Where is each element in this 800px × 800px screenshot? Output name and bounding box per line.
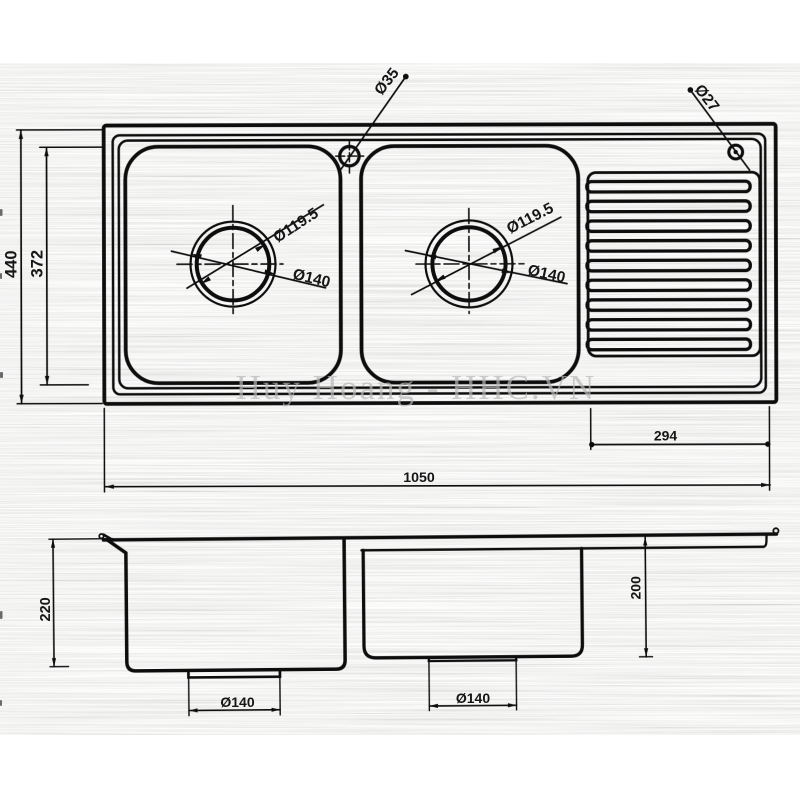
svg-text:Ø140: Ø140 (456, 690, 490, 706)
svg-text:200: 200 (628, 576, 644, 600)
svg-text:1050: 1050 (403, 470, 435, 486)
svg-text:372: 372 (29, 250, 47, 278)
svg-text:220: 220 (38, 597, 54, 621)
svg-text:Ø140: Ø140 (220, 694, 254, 710)
svg-text:440: 440 (3, 250, 21, 278)
svg-text:294: 294 (654, 428, 678, 444)
svg-text:Huy Hoang - HHC.VN: Huy Hoang - HHC.VN (236, 368, 597, 407)
